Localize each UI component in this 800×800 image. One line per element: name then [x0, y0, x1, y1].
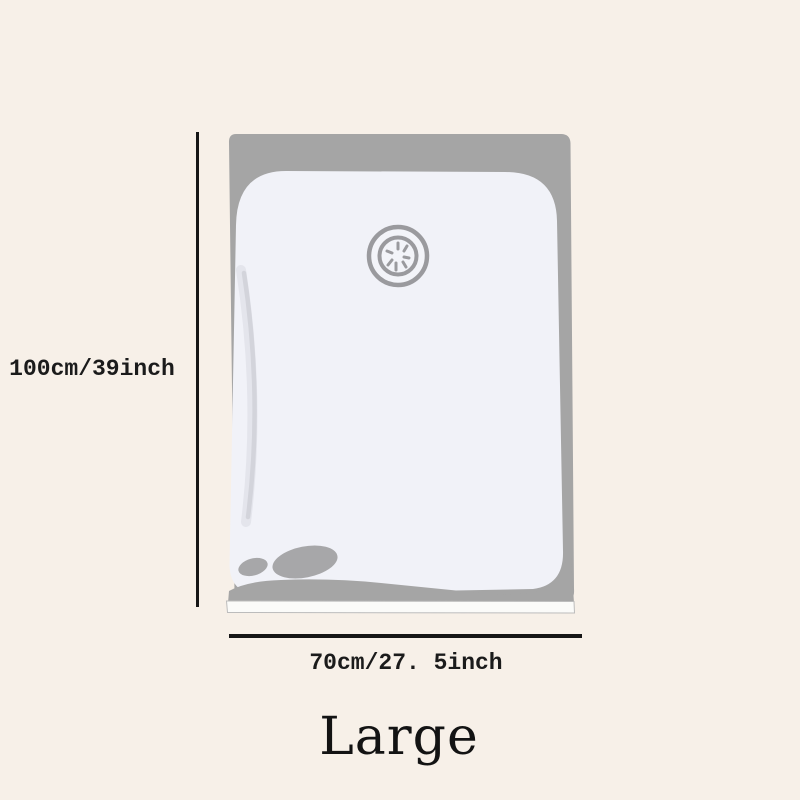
suction-valve-icon: [369, 227, 427, 285]
size-name-label: Large: [319, 708, 478, 768]
width-dimension-label: 70cm/27. 5inch: [309, 650, 502, 676]
vacuum-bag-illustration: [0, 0, 800, 800]
height-dimension-line: [196, 132, 199, 607]
bag-seal-strip: [227, 601, 575, 613]
width-dimension-line: [229, 634, 582, 638]
product-size-diagram: 100cm/39inch 70cm/27. 5inch Large: [0, 0, 800, 800]
height-dimension-label: 100cm/39inch: [9, 356, 175, 382]
